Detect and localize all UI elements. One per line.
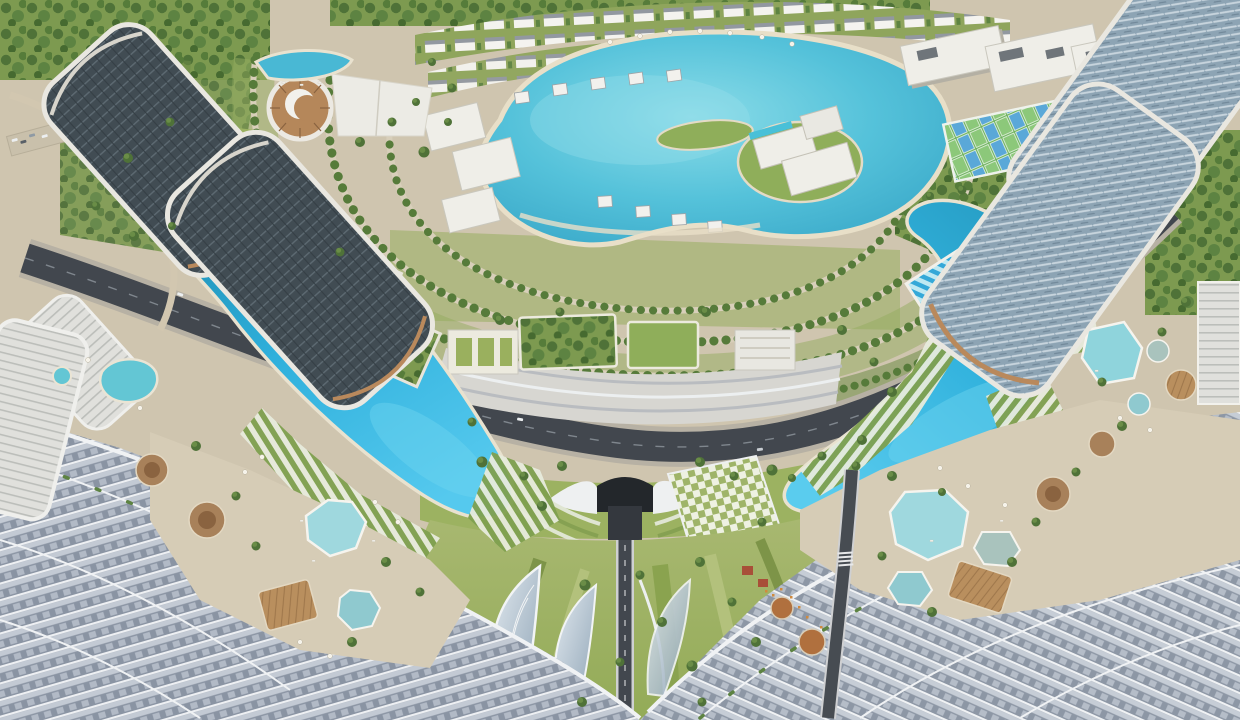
aerial-render: Aerial rendering of a master-planned lag…	[0, 0, 1240, 720]
aerial-render-canvas: Aerial rendering of a master-planned lag…	[0, 0, 1240, 720]
